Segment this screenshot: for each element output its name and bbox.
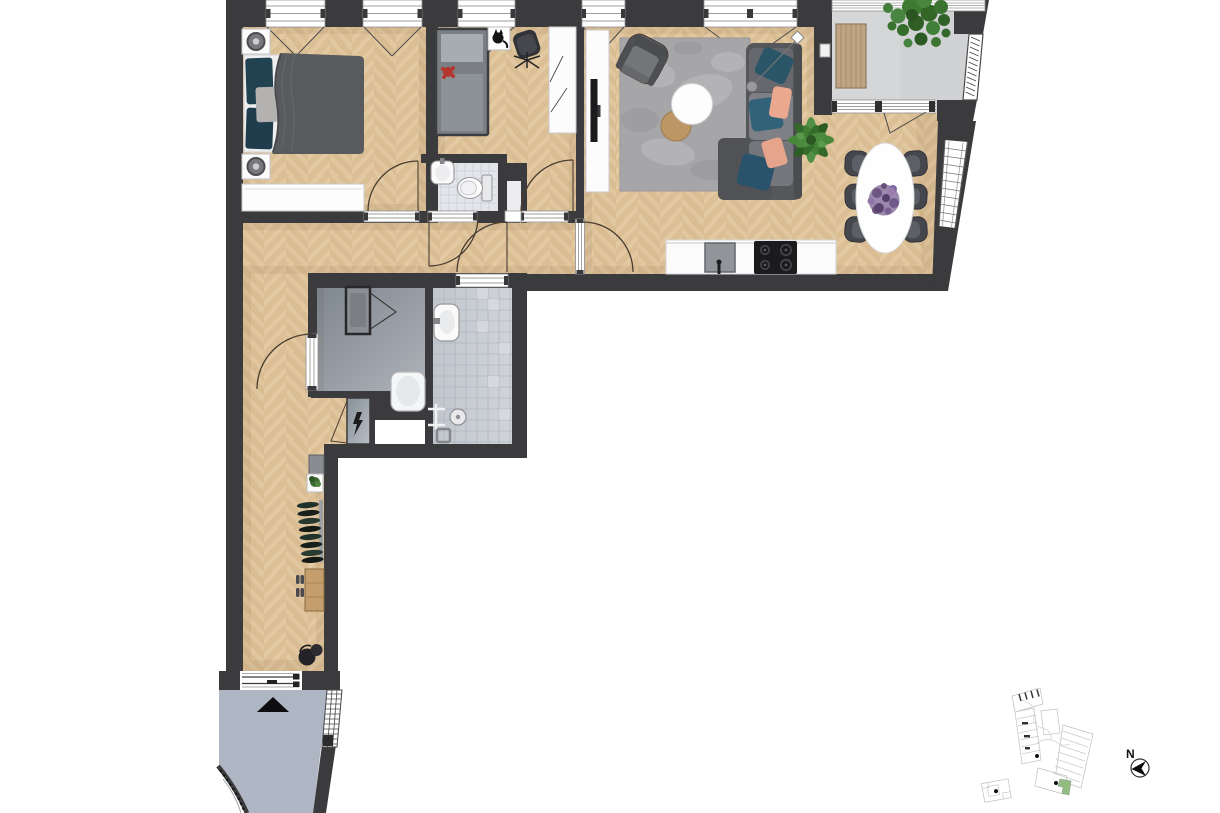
svg-text:N: N — [1126, 747, 1135, 761]
